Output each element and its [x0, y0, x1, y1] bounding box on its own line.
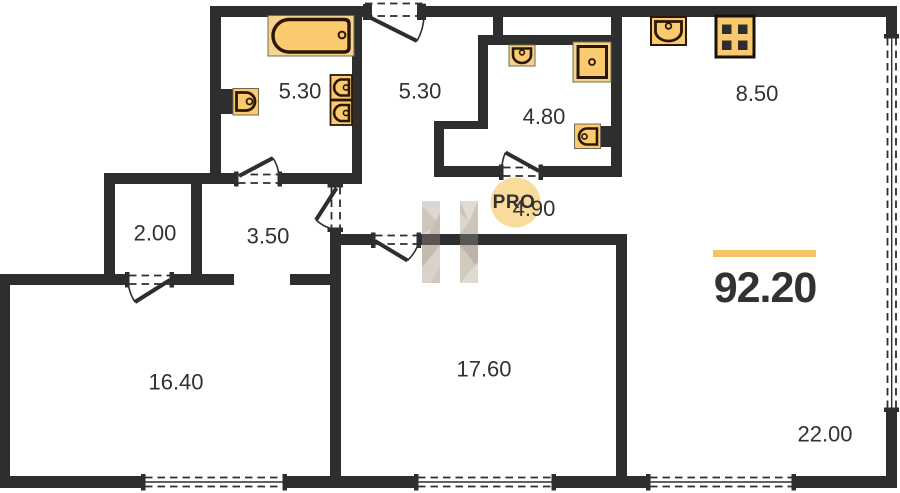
svg-text:2.00: 2.00	[134, 221, 177, 246]
svg-text:16.40: 16.40	[148, 370, 203, 395]
svg-text:4.90: 4.90	[513, 196, 556, 221]
svg-text:8.50: 8.50	[736, 81, 779, 106]
svg-text:5.30: 5.30	[399, 79, 442, 104]
svg-text:3.50: 3.50	[247, 224, 290, 249]
svg-text:17.60: 17.60	[456, 357, 511, 382]
svg-text:22.00: 22.00	[797, 422, 852, 447]
svg-text:5.30: 5.30	[279, 79, 322, 104]
svg-text:92.20: 92.20	[714, 264, 817, 312]
svg-text:4.80: 4.80	[523, 104, 566, 129]
